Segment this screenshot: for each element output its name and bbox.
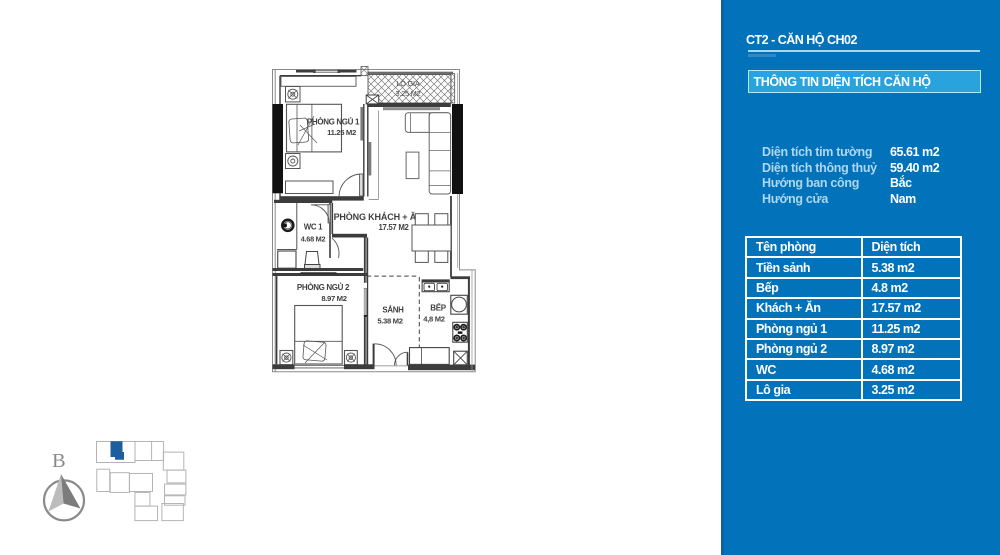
svg-text:LÔ GIA: LÔ GIA — [396, 79, 419, 88]
svg-text:PHÒNG NGỦ 1: PHÒNG NGỦ 1 — [307, 118, 360, 127]
svg-text:B: B — [52, 450, 66, 472]
svg-text:4,8 M2: 4,8 M2 — [423, 314, 444, 323]
svg-text:17.57 M2: 17.57 M2 — [378, 223, 409, 232]
svg-text:8.97 M2: 8.97 M2 — [321, 294, 346, 303]
svg-text:11.25 M2: 11.25 M2 — [327, 128, 356, 137]
svg-text:3.25 M2: 3.25 M2 — [396, 89, 421, 98]
svg-text:4.68 M2: 4.68 M2 — [301, 235, 326, 244]
svg-text:SẢNH: SẢNH — [382, 306, 404, 315]
svg-text:BẾP: BẾP — [430, 303, 447, 313]
svg-text:5.38 M2: 5.38 M2 — [377, 316, 402, 325]
svg-text:WC 1: WC 1 — [304, 222, 323, 231]
svg-text:PHÒNG KHÁCH + ĂN: PHÒNG KHÁCH + ĂN — [334, 211, 423, 222]
svg-text:PHÒNG NGỦ 2: PHÒNG NGỦ 2 — [297, 283, 350, 292]
